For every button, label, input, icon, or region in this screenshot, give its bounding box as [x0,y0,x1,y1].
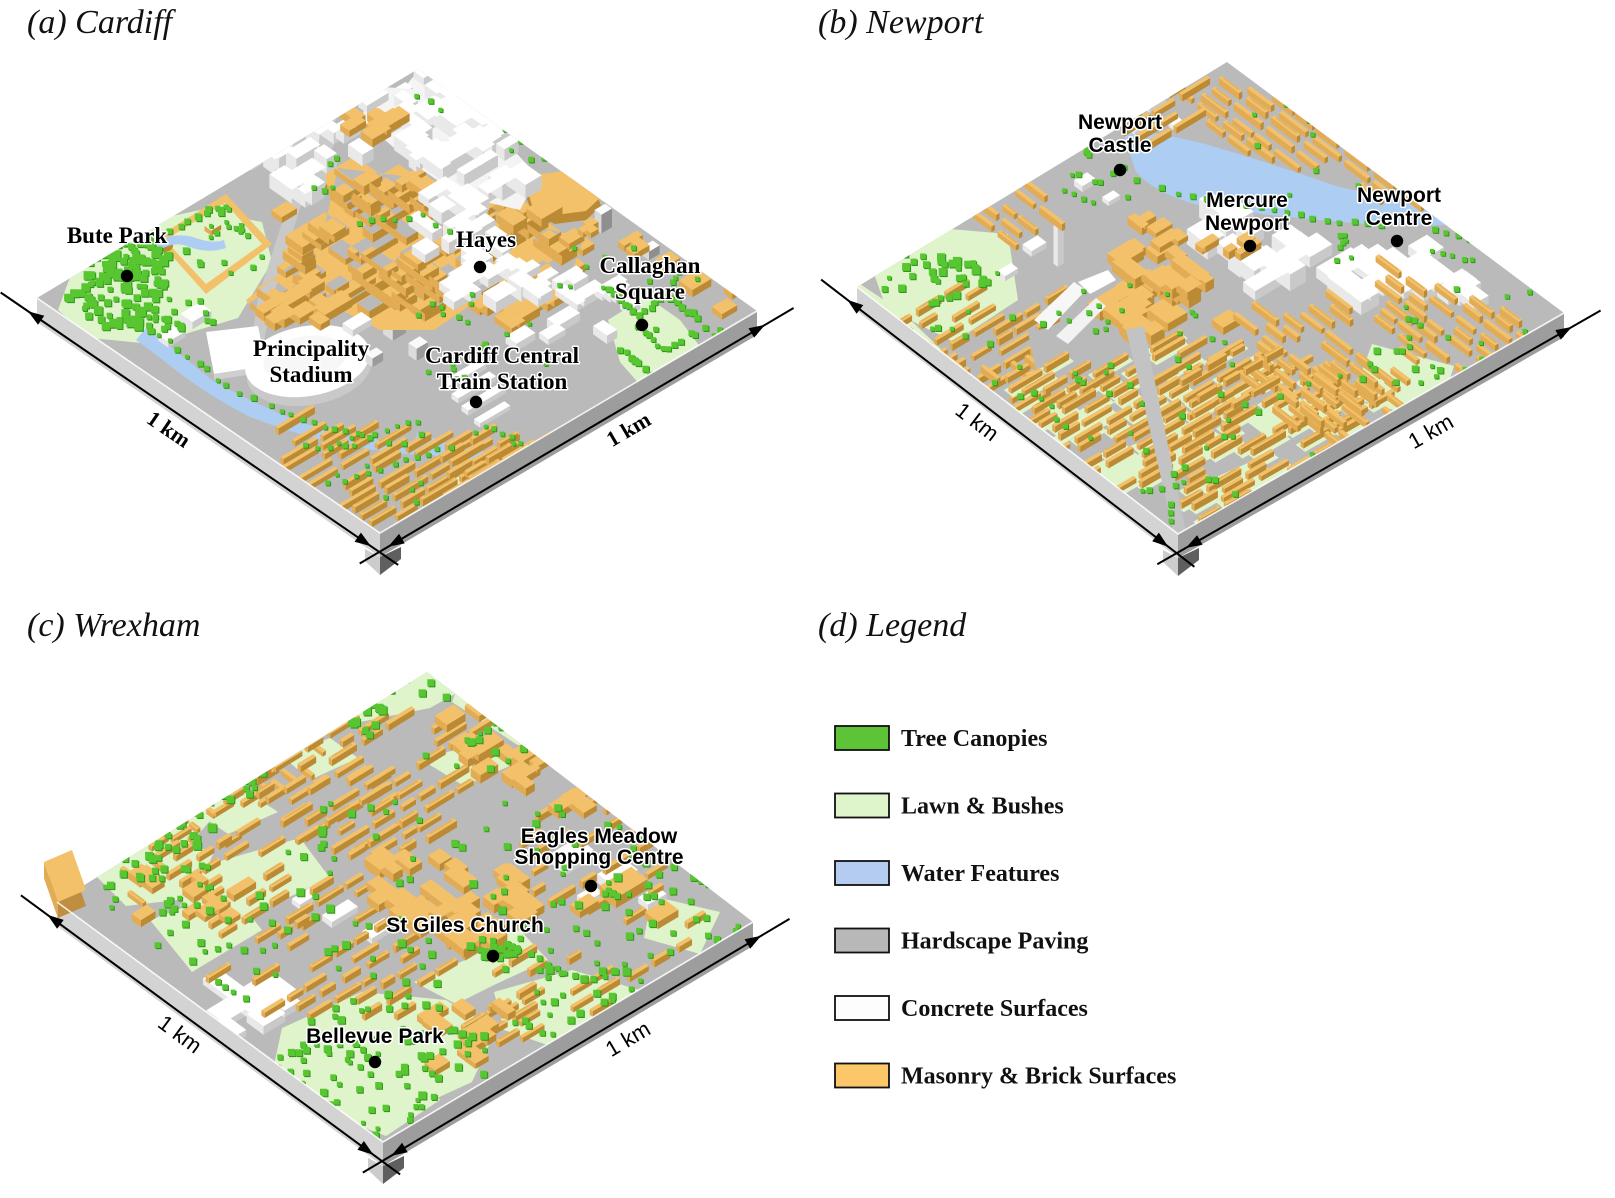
svg-text:Eagles Meadow: Eagles Meadow [521,825,678,848]
svg-text:St Giles Church: St Giles Church [386,914,544,937]
svg-text:(b) Newport: (b) Newport [818,4,985,41]
svg-text:Newport: Newport [1078,111,1162,134]
svg-text:Hayes: Hayes [456,227,516,252]
svg-text:Principality: Principality [253,336,370,361]
svg-text:Callaghan: Callaghan [600,253,701,278]
svg-text:(a) Cardiff: (a) Cardiff [27,4,177,41]
svg-text:Shopping Centre: Shopping Centre [514,846,683,869]
svg-text:Newport: Newport [1357,184,1441,207]
svg-text:Castle: Castle [1088,134,1151,157]
svg-text:Stadium: Stadium [269,362,352,387]
svg-text:Masonry & Brick Surfaces: Masonry & Brick Surfaces [901,1064,1176,1090]
svg-text:(d) Legend: (d) Legend [818,607,967,644]
svg-text:(c) Wrexham: (c) Wrexham [27,607,200,644]
svg-text:Cardiff Central: Cardiff Central [425,343,579,368]
svg-text:Water Features: Water Features [901,861,1059,887]
svg-text:Train Station: Train Station [437,369,568,394]
svg-text:Lawn & Bushes: Lawn & Bushes [901,794,1064,820]
svg-text:Square: Square [615,279,685,304]
svg-text:Mercure: Mercure [1206,189,1288,212]
svg-text:Bute Park: Bute Park [67,223,168,248]
svg-text:Centre: Centre [1366,207,1433,230]
svg-text:Concrete Surfaces: Concrete Surfaces [901,996,1088,1022]
svg-text:Hardscape Paving: Hardscape Paving [901,929,1088,955]
svg-text:Tree Canopies: Tree Canopies [901,726,1047,752]
svg-text:Newport: Newport [1205,212,1289,235]
svg-text:Bellevue Park: Bellevue Park [306,1025,444,1048]
